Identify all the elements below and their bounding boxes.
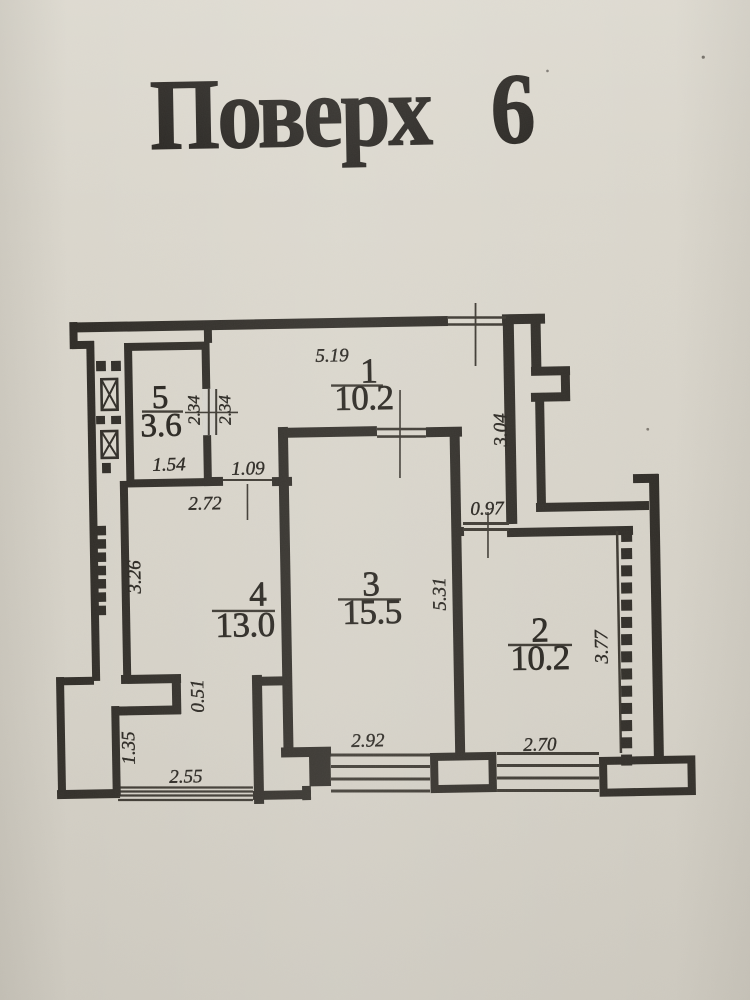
- svg-text:1.09: 1.09: [231, 458, 265, 480]
- svg-text:1.54: 1.54: [152, 454, 186, 476]
- svg-text:0.97: 0.97: [470, 498, 505, 520]
- svg-text:3.77: 3.77: [591, 629, 613, 665]
- svg-text:3.04: 3.04: [490, 413, 512, 448]
- svg-text:13.0: 13.0: [215, 605, 275, 645]
- svg-text:3.6: 3.6: [140, 408, 182, 445]
- svg-text:5.31: 5.31: [429, 577, 451, 611]
- svg-text:10.2: 10.2: [334, 378, 394, 418]
- svg-text:2.55: 2.55: [169, 766, 203, 788]
- svg-text:2.92: 2.92: [351, 730, 385, 752]
- svg-text:15.5: 15.5: [342, 592, 402, 632]
- svg-text:5.19: 5.19: [315, 345, 349, 367]
- svg-text:Поверх: Поверх: [149, 54, 434, 171]
- svg-text:6: 6: [490, 52, 537, 165]
- svg-text:2.34: 2.34: [184, 394, 204, 425]
- svg-text:3.26: 3.26: [124, 560, 146, 595]
- svg-text:0.51: 0.51: [187, 679, 209, 713]
- svg-text:2.72: 2.72: [188, 493, 222, 515]
- svg-text:1.35: 1.35: [118, 731, 140, 765]
- svg-text:2.70: 2.70: [523, 734, 557, 756]
- svg-text:10.2: 10.2: [510, 638, 570, 678]
- svg-text:2.34: 2.34: [215, 394, 235, 425]
